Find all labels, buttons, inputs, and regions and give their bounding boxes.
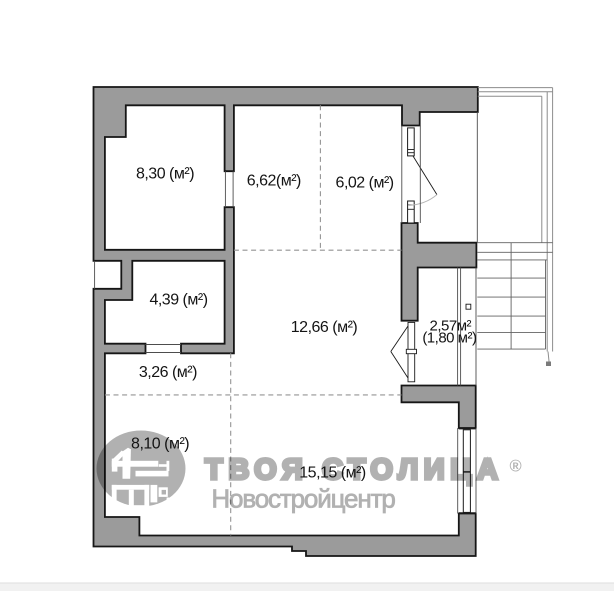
svg-text:6,02 (м²): 6,02 (м²) [336,174,394,191]
svg-text:12,66 (м²): 12,66 (м²) [291,319,358,336]
svg-text:6,62(м²): 6,62(м²) [247,173,301,190]
svg-text:3,26 (м²): 3,26 (м²) [139,364,197,381]
svg-text:(1,80 м²): (1,80 м²) [422,330,477,347]
svg-text:8,10 (м²): 8,10 (м²) [131,436,189,453]
svg-text:15,15 (м²): 15,15 (м²) [299,465,366,482]
svg-text:4,39 (м²): 4,39 (м²) [149,292,207,309]
svg-text:8,30 (м²): 8,30 (м²) [136,165,194,182]
svg-text:®: ® [510,458,522,476]
svg-text:Новостройцентр: Новостройцентр [211,483,395,513]
